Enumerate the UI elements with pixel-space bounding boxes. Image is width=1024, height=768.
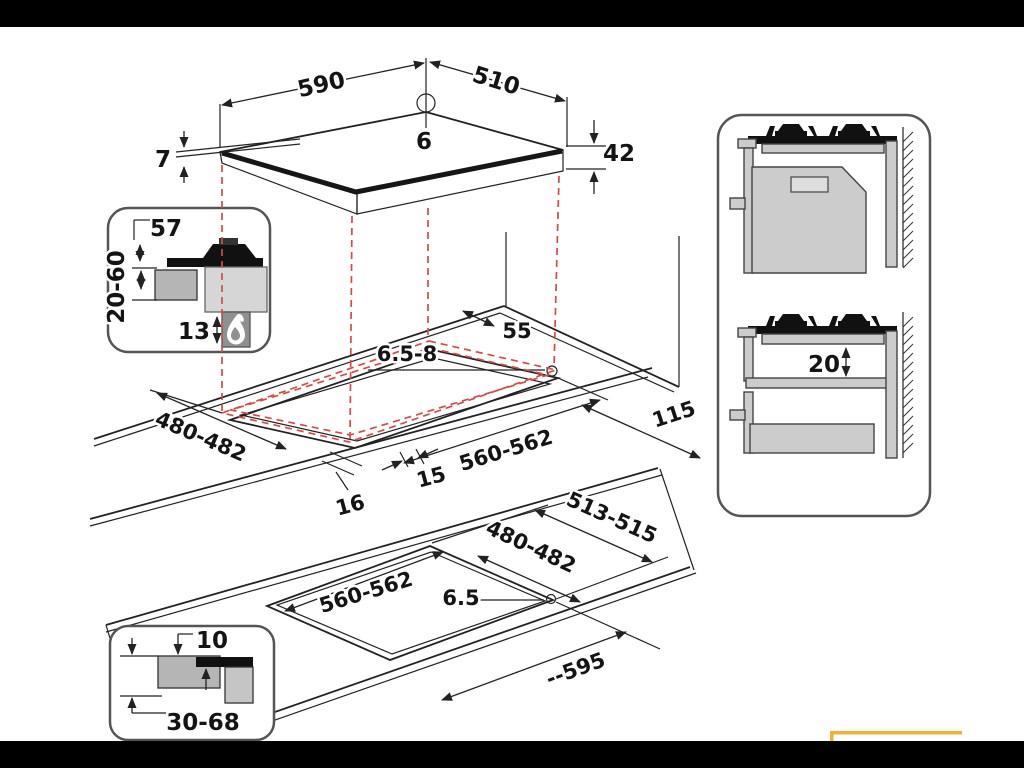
section-view-with-shelf: 20 <box>730 312 913 458</box>
dim-overall-width: --595 <box>543 648 609 692</box>
left-detail-inset: 57 20-60 13 <box>104 208 270 352</box>
yellow-highlight-corner <box>830 731 962 741</box>
dim-hole-diameter: 6 <box>416 129 432 155</box>
dim-mid-cutout-depth: 480-482 <box>152 407 250 467</box>
dim-counter-range: 30-68 <box>166 710 240 736</box>
installation-diagram: 20 57 20-60 13 <box>0 0 1024 768</box>
dim-left-offset: 16 <box>333 490 367 521</box>
dim-screw-hole: 6.5-8 <box>377 342 438 366</box>
hob-side-left <box>220 152 357 214</box>
hob-profile-bar <box>748 326 897 334</box>
dim-mid-cutout-width: 560-562 <box>456 425 555 476</box>
dim-bottom-cutout-depth: 480-482 <box>482 515 580 577</box>
hob-side-right <box>357 150 563 214</box>
dim-top-depth: 510 <box>469 62 523 101</box>
hob-edge-bar <box>196 657 253 667</box>
hob-surface-bar <box>167 258 263 267</box>
dim-side-clearance: 115 <box>649 396 698 432</box>
right-section-panel: 20 <box>718 115 930 516</box>
counter-section <box>155 270 197 300</box>
hob-body-slab <box>762 144 884 153</box>
body-height-marks <box>566 120 606 194</box>
hob-profile-bar <box>748 136 897 144</box>
dim-body-height: 42 <box>603 141 635 167</box>
dim-top-width: 590 <box>295 67 348 103</box>
dim-counter-thickness: 20-60 <box>104 250 130 324</box>
separator-shelf <box>746 378 888 388</box>
dim-front-offset: 15 <box>414 462 448 493</box>
burner-body <box>205 267 267 312</box>
cabinet-side-right <box>886 141 897 267</box>
drawer-box <box>750 424 874 453</box>
bottom-detail-inset: 10 30-68 <box>110 626 274 740</box>
dim-glass-thickness: 7 <box>155 147 171 173</box>
dim-bottom-outer-depth: 513-515 <box>563 487 661 548</box>
hob-body-slab <box>762 334 884 344</box>
diagram-page: 20 57 20-60 13 <box>0 0 1024 768</box>
cutout-opening <box>267 546 553 660</box>
letterbox-bottom <box>0 741 1024 768</box>
top-isometric-view <box>176 58 606 214</box>
letterbox-top <box>0 0 1024 27</box>
hob-glass-top <box>220 112 563 192</box>
dim-burner-height: 57 <box>150 216 182 242</box>
dim-edge-overlap: 10 <box>196 628 228 654</box>
dim-shelf-clearance: 20 <box>808 352 840 378</box>
hob-body-section <box>225 667 253 703</box>
cabinet-side-right <box>886 331 897 458</box>
dim-back-clearance: 55 <box>502 319 531 343</box>
dim-bottom-screw-hole: 6.5 <box>442 586 479 610</box>
dim-clearance-below: 13 <box>178 319 210 345</box>
oven-vent <box>791 177 828 192</box>
